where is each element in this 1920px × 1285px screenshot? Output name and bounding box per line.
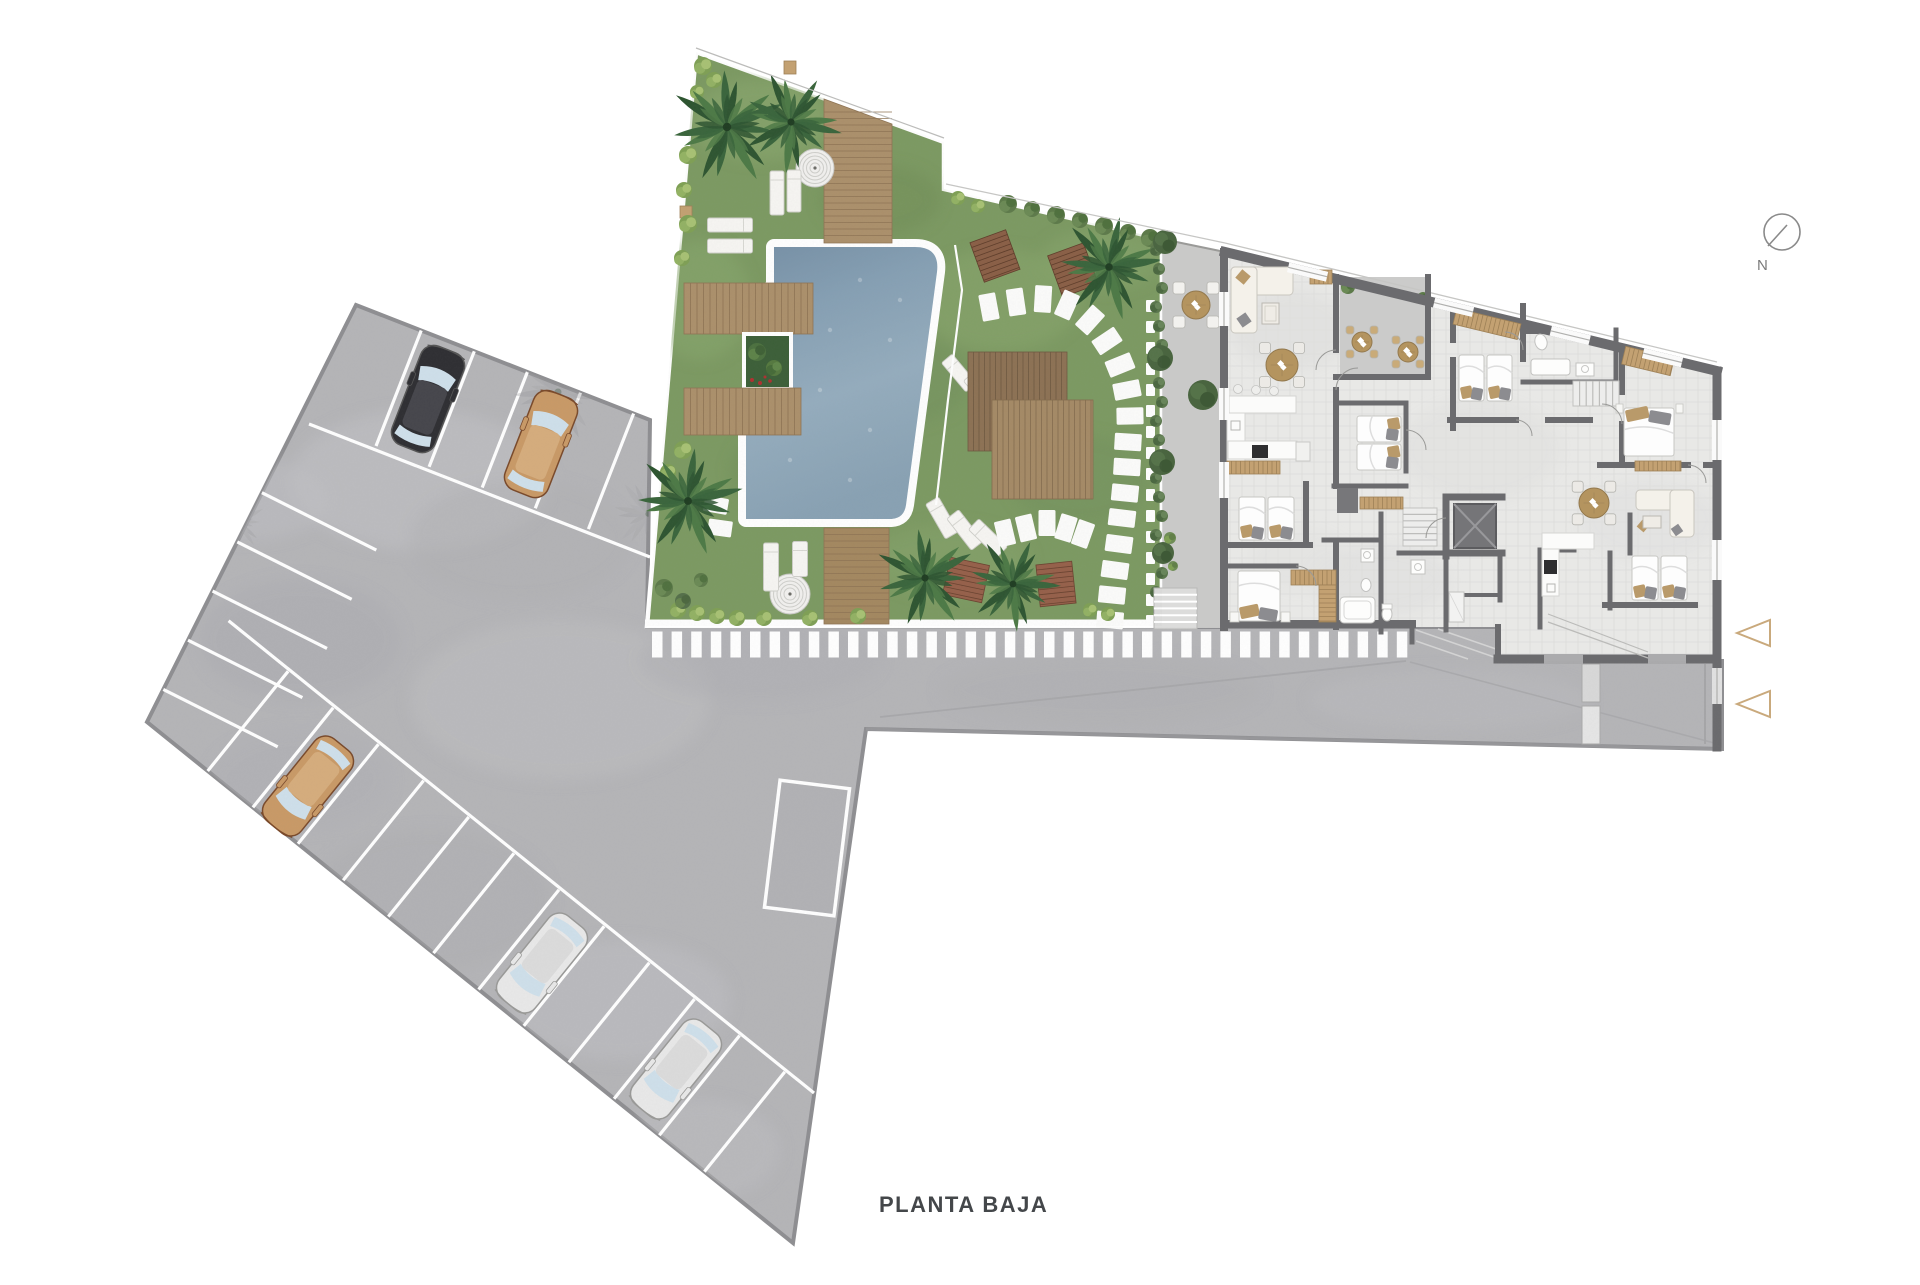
svg-text:PLANTA BAJA: PLANTA BAJA [879, 1192, 1048, 1217]
svg-text:N: N [1757, 257, 1768, 274]
